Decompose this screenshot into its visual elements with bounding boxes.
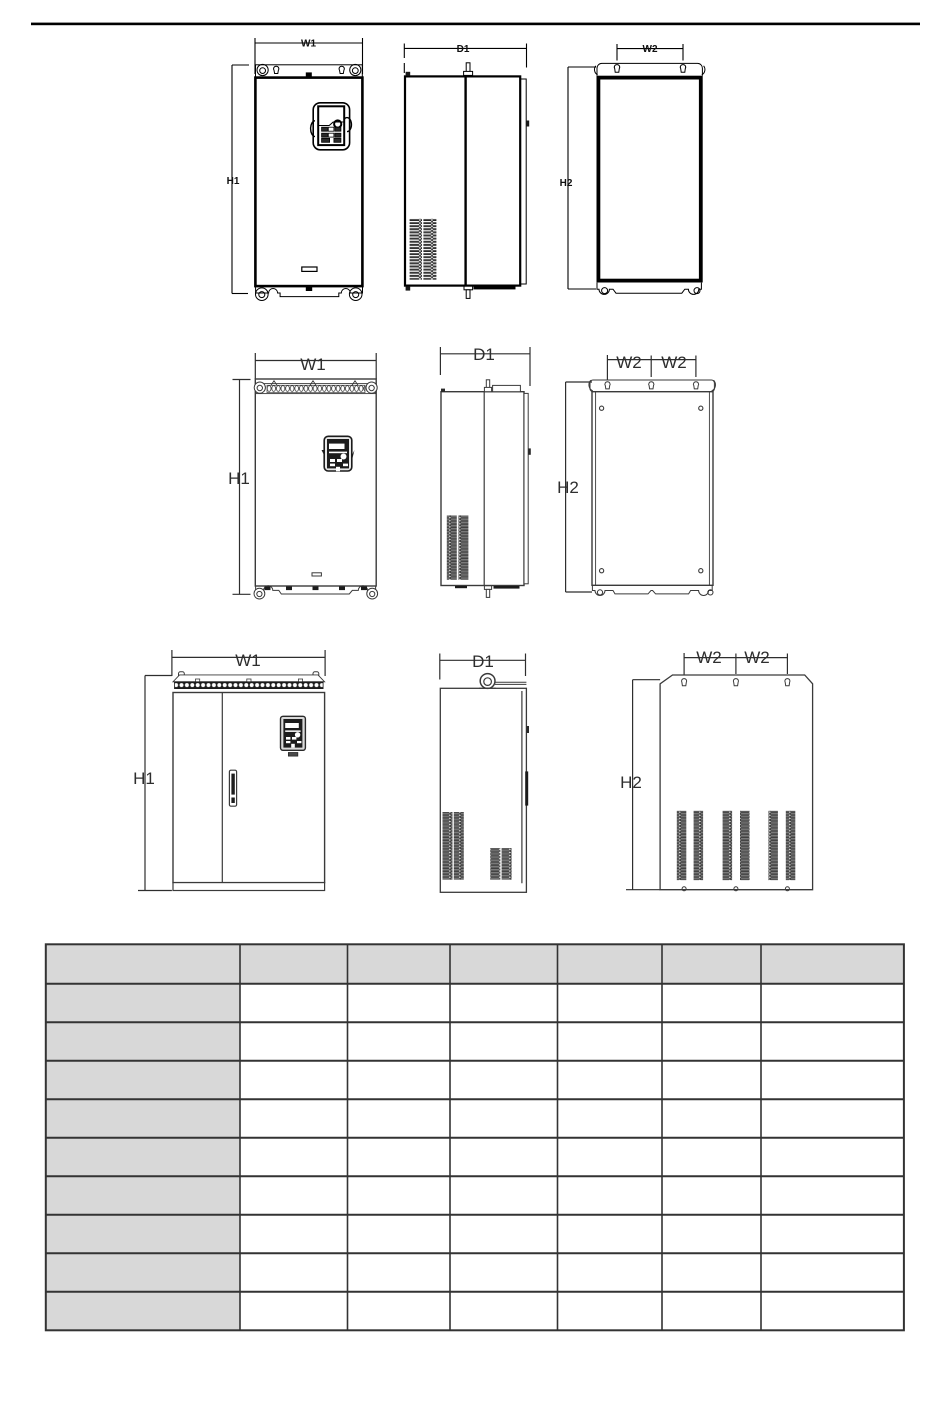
- svg-text:H2: H2: [620, 773, 642, 792]
- svg-text:H2: H2: [560, 178, 573, 189]
- svg-text:H1: H1: [228, 469, 250, 488]
- svg-text:D1: D1: [457, 44, 470, 55]
- svg-text:W1: W1: [235, 651, 261, 670]
- svg-text:W2: W2: [643, 44, 658, 55]
- svg-text:H1: H1: [227, 176, 240, 187]
- svg-text:W2: W2: [744, 648, 770, 667]
- svg-text:D1: D1: [472, 652, 494, 671]
- svg-text:H1: H1: [133, 769, 155, 788]
- svg-text:W1: W1: [300, 355, 326, 374]
- svg-text:W2: W2: [696, 648, 722, 667]
- svg-text:W1: W1: [301, 39, 316, 50]
- svg-text:W2: W2: [616, 353, 642, 372]
- svg-text:W2: W2: [661, 353, 687, 372]
- svg-text:D1: D1: [473, 345, 495, 364]
- svg-text:H2: H2: [557, 478, 579, 497]
